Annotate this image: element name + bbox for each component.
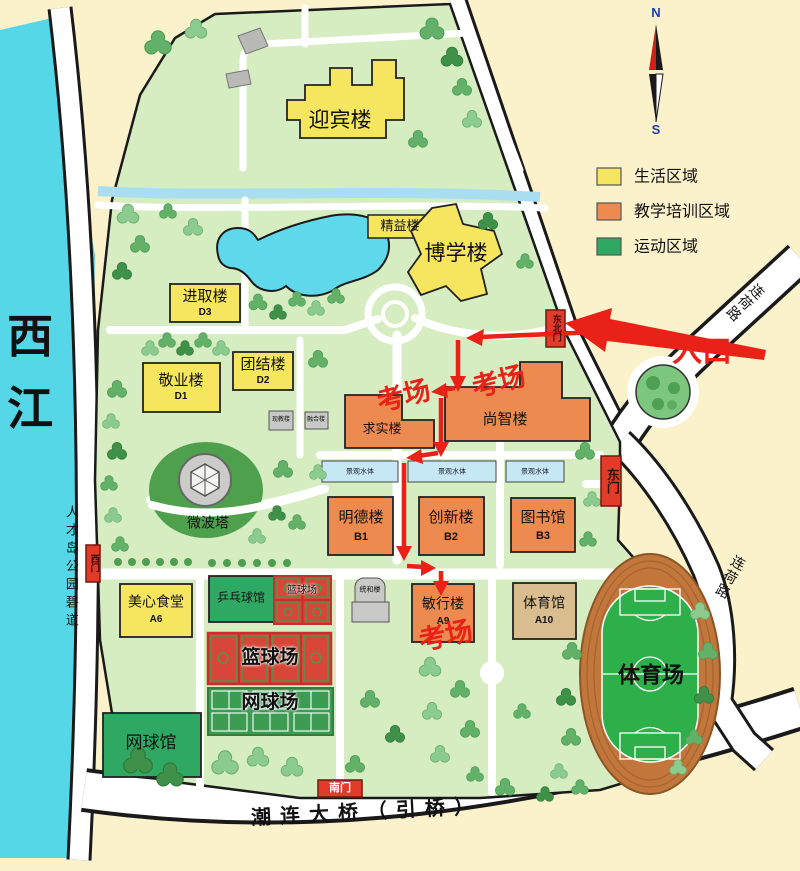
legend-label-sports: 运动区域 [634,239,698,256]
label-minxing: 敏行楼 [422,598,464,613]
label-qiushi: 求实楼 [362,423,401,437]
label-wangqiu-guan: 网球馆 [126,735,177,753]
gate-northeast-label: 东北门 [550,315,559,342]
label-boxue: 博学楼 [425,242,488,264]
label-water-strip-3: 景观水体 [521,468,549,475]
campus-map: 西江 人才岛公园碧道 连荷路 连荷路 潮连大桥（引桥） N S 生活区域 教学培… [0,0,800,871]
label-tuanjie-code: D2 [257,376,270,387]
basketball-courts-small [274,576,331,624]
label-lanqiu-small: 篮球场 [287,586,317,597]
label-tushuguan-code: B3 [536,531,550,543]
label-water-strip-1: 景观水体 [346,468,374,475]
label-mingde: 明德楼 [338,510,383,526]
label-pingpang: 乒乓球馆 [217,592,265,605]
label-chuangxin-code: B2 [444,532,458,544]
compass-south-label: S [652,123,661,137]
label-wangqiu-chang: 网球场 [241,693,298,713]
label-xianjiao: 现教楼 [272,417,290,423]
gate-south-label: 南门 [329,782,351,794]
road-label-west-greenway: 人才岛公园碧道 [64,505,78,631]
gate-east-label: 东门 [604,468,618,494]
label-tuanjie: 团结楼 [240,357,285,373]
label-weibota: 微波塔 [187,517,229,532]
label-jinqu: 进取楼 [182,289,227,305]
legend-swatch-sports [597,238,621,255]
label-water-strip-2: 景观水体 [438,468,466,475]
label-tushuguan: 图书馆 [520,510,565,526]
label-meixin: 美心食堂 [128,596,184,611]
legend [597,168,621,255]
label-jingye: 敬业楼 [158,373,203,389]
legend-label-teaching: 教学培训区域 [634,204,730,221]
river-label: 西江 [3,312,51,464]
stream [98,191,540,197]
compass-north-label: N [651,6,660,20]
label-tiyuguan-code: A10 [535,616,553,627]
label-jinqu-code: D3 [199,308,212,319]
legend-swatch-teaching [597,203,621,220]
label-tiyuguan: 体育馆 [523,597,565,612]
label-tiyuchang: 体育场 [618,664,684,687]
label-mingde-code: B1 [354,532,368,544]
label-lanqiu-big: 篮球场 [241,648,298,668]
label-shangzhi: 尚智楼 [482,412,527,428]
label-tonghe: 统和楼 [360,586,381,593]
label-ronghe: 融合楼 [307,417,325,423]
label-jingyi: 精益楼 [380,220,419,234]
legend-swatch-life [597,168,621,185]
gate-west-label: 西门 [88,554,97,572]
label-chuangxin: 创新楼 [428,510,473,526]
plaza-circle-south [480,661,504,685]
label-jingye-code: D1 [175,392,188,403]
legend-label-life: 生活区域 [634,169,698,186]
annotation-entrance: 入口 [672,336,732,368]
label-meixin-code: A6 [150,615,163,626]
label-yingbin: 迎宾楼 [309,109,372,131]
